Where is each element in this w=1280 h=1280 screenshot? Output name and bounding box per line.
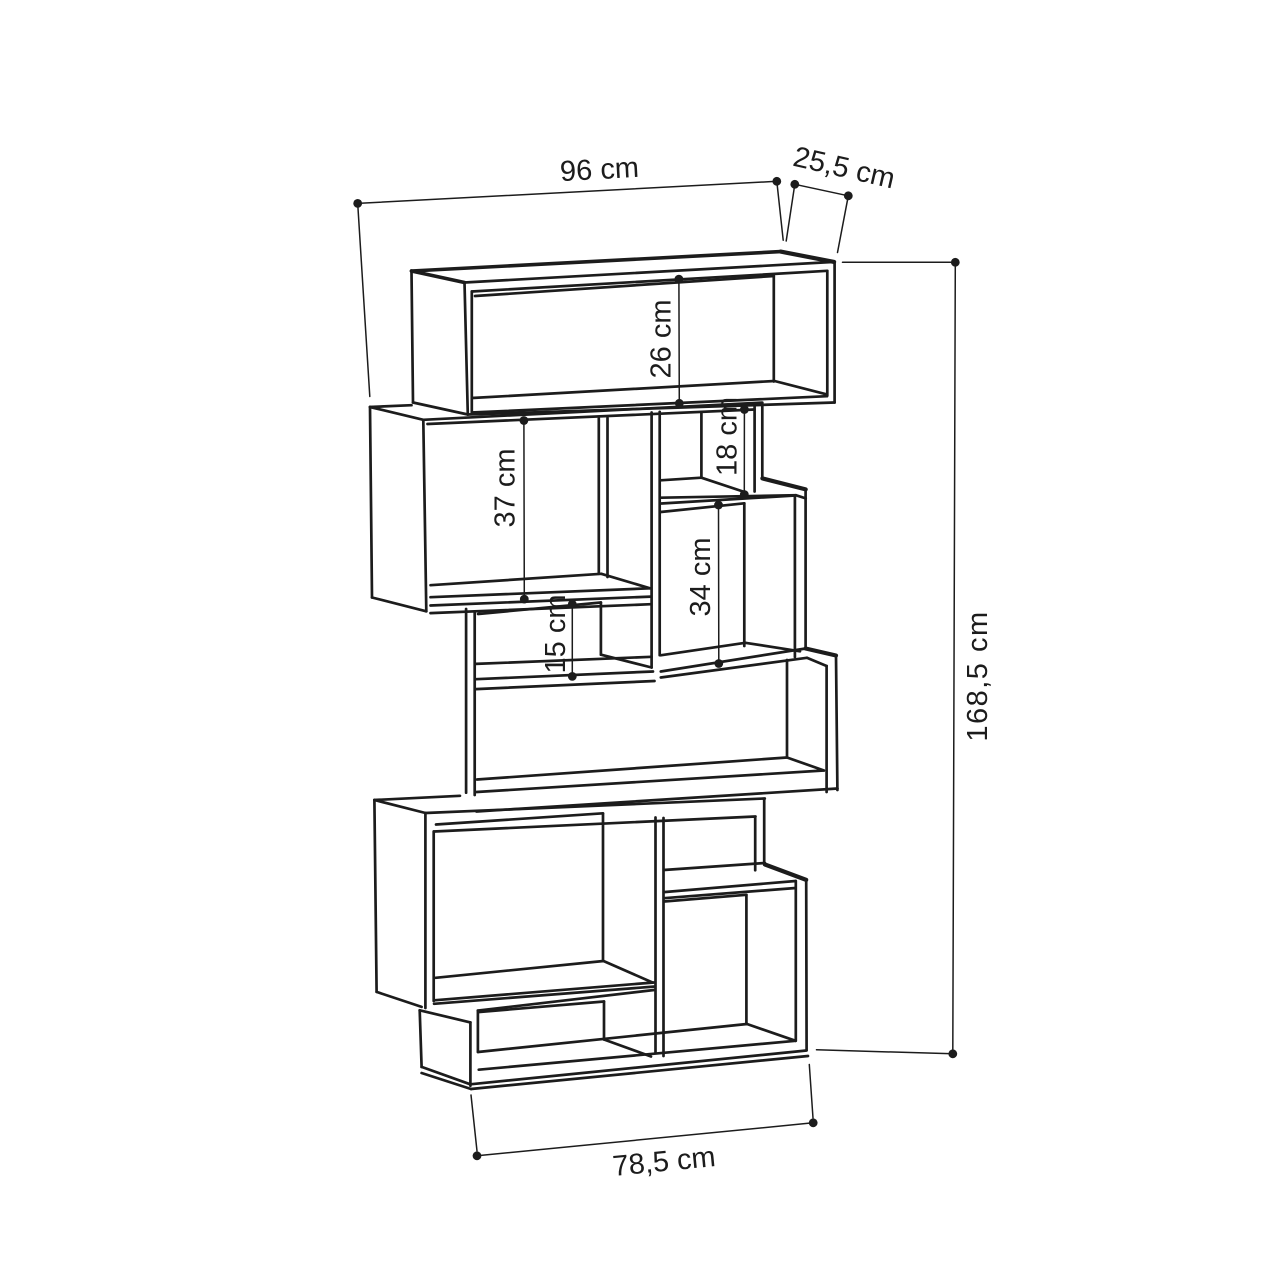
svg-text:18 cm: 18 cm	[712, 397, 744, 476]
svg-text:34 cm: 34 cm	[685, 538, 717, 617]
svg-text:37 cm: 37 cm	[490, 449, 522, 528]
svg-text:168,5 cm: 168,5 cm	[962, 610, 994, 741]
svg-text:26 cm: 26 cm	[646, 300, 678, 379]
svg-text:96 cm: 96 cm	[559, 152, 640, 188]
svg-text:15 cm: 15 cm	[540, 595, 572, 674]
